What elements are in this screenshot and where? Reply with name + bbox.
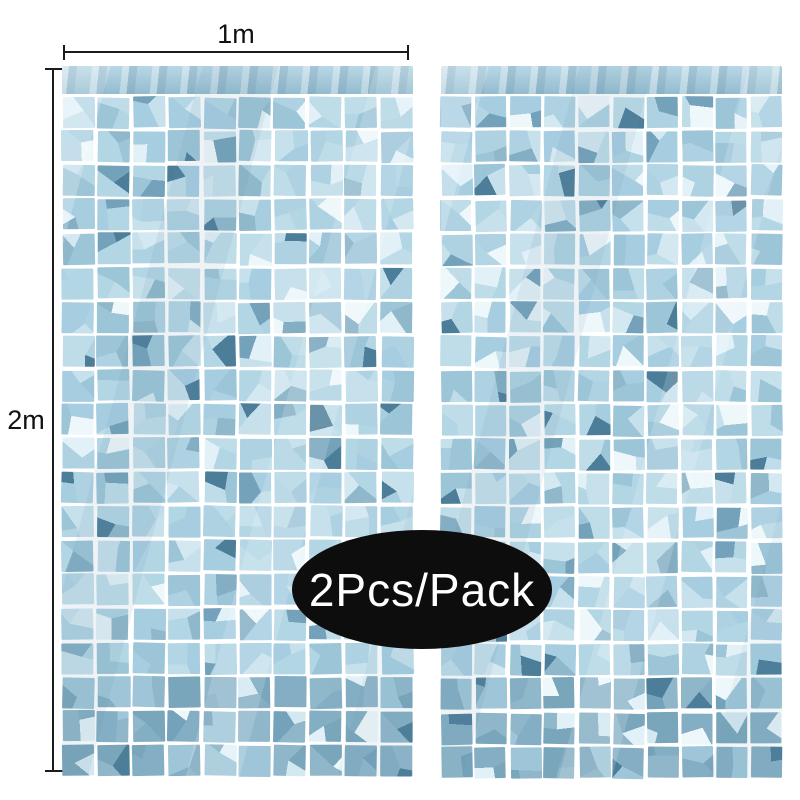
foil-square: [310, 130, 343, 162]
foil-square: [132, 744, 165, 776]
foil-square: [647, 371, 679, 402]
foil-square: [169, 301, 202, 332]
foil-square: [61, 608, 94, 640]
foil-square: [751, 507, 783, 539]
foil-square: [168, 745, 201, 777]
foil-square: [62, 573, 95, 605]
foil-square: [543, 712, 575, 744]
foil-square: [475, 302, 507, 333]
foil-square: [132, 267, 165, 299]
foil-square: [613, 644, 645, 675]
foil-square: [751, 302, 782, 333]
foil-square: [441, 473, 473, 504]
foil-square: [544, 438, 576, 470]
foil-square: [309, 710, 342, 742]
foil-square: [380, 403, 413, 435]
foil-square: [345, 302, 378, 333]
foil-square: [98, 266, 131, 298]
foil-square: [97, 97, 130, 129]
foil-square: [648, 644, 680, 676]
foil-square: [646, 473, 678, 505]
foil-square: [509, 269, 540, 300]
foil-square: [544, 472, 576, 504]
foil-square: [380, 745, 412, 776]
foil-square: [614, 439, 646, 471]
foil-square: [169, 541, 202, 573]
foil-square: [309, 405, 342, 437]
foil-square: [240, 609, 273, 640]
foil-square: [579, 440, 610, 471]
foil-square: [717, 611, 749, 642]
foil-square: [475, 96, 507, 128]
foil-square: [682, 166, 714, 198]
pack-count-label: 2Pcs/Pack: [309, 567, 535, 613]
foil-square: [750, 96, 782, 128]
foil-square: [380, 97, 413, 128]
foil-square: [62, 506, 95, 537]
foil-square: [750, 335, 782, 367]
foil-square: [275, 676, 308, 707]
foil-square: [612, 508, 644, 540]
foil-square: [614, 577, 646, 609]
foil-square: [380, 165, 413, 197]
foil-square: [345, 745, 378, 777]
foil-square: [442, 234, 474, 266]
foil-square: [274, 643, 306, 674]
foil-square: [750, 712, 782, 743]
foil-square: [578, 507, 609, 538]
foil-square: [510, 371, 542, 403]
foil-square: [132, 642, 165, 674]
foil-square: [612, 542, 644, 573]
foil-square: [61, 541, 94, 573]
foil-square: [509, 473, 541, 505]
foil-square: [381, 198, 414, 230]
foil-square: [97, 302, 130, 333]
foil-square: [311, 165, 344, 196]
foil-square: [681, 540, 713, 572]
foil-square: [750, 132, 782, 164]
foil-square: [168, 404, 201, 436]
foil-square: [681, 713, 712, 744]
foil-square: [98, 233, 130, 264]
foil-square: [682, 96, 714, 127]
foil-square: [750, 575, 782, 607]
foil-square: [61, 302, 94, 334]
foil-square: [545, 644, 577, 676]
foil-square: [63, 198, 96, 229]
foil-square: [440, 268, 472, 300]
foil-square: [63, 335, 96, 366]
foil-square: [61, 403, 94, 434]
foil-square: [346, 676, 379, 707]
foil-square: [579, 336, 611, 368]
foil-square: [614, 679, 646, 710]
foil-square: [239, 506, 272, 538]
foil-square: [441, 131, 473, 163]
foil-square: [274, 745, 307, 777]
foil-square: [510, 678, 542, 710]
foil-square: [380, 301, 413, 333]
foil-square: [509, 165, 541, 197]
foil-square: [543, 677, 575, 709]
foil-square: [309, 267, 342, 298]
foil-square: [440, 679, 472, 710]
right-curtain: [441, 66, 782, 778]
foil-square: [133, 710, 166, 742]
foil-square: [238, 165, 271, 197]
foil-square: [204, 677, 237, 708]
foil-square: [612, 200, 644, 232]
foil-square: [475, 130, 507, 162]
foil-square: [310, 745, 342, 776]
foil-square: [239, 575, 271, 606]
foil-square: [750, 439, 782, 470]
foil-square: [133, 472, 166, 503]
foil-square: [133, 437, 166, 468]
foil-square: [578, 576, 610, 608]
foil-square: [647, 164, 679, 196]
foil-square: [203, 607, 236, 639]
foil-square: [346, 130, 379, 161]
foil-square: [578, 301, 609, 332]
foil-square: [97, 166, 130, 198]
foil-square: [132, 574, 164, 605]
curtain-grid: [62, 94, 413, 776]
foil-square: [309, 96, 342, 128]
foil-square: [544, 96, 576, 128]
foil-square: [716, 438, 748, 470]
foil-square: [345, 233, 378, 265]
foil-square: [203, 711, 236, 743]
foil-square: [475, 506, 507, 538]
foil-square: [309, 198, 342, 230]
foil-square: [97, 438, 130, 469]
foil-square: [543, 302, 575, 334]
foil-square: [476, 473, 508, 505]
foil-square: [682, 130, 714, 162]
foil-square: [613, 335, 645, 366]
foil-square: [61, 130, 94, 161]
foil-square: [441, 645, 472, 676]
foil-square: [380, 132, 413, 164]
foil-square: [97, 642, 130, 673]
foil-square: [275, 234, 307, 265]
foil-square: [543, 268, 575, 300]
foil-square: [682, 200, 714, 232]
foil-square: [613, 97, 645, 129]
foil-square: [167, 471, 200, 503]
foil-square: [204, 472, 237, 504]
foil-square: [682, 643, 714, 675]
foil-square: [239, 540, 272, 572]
foil-square: [476, 678, 508, 709]
foil-square: [204, 369, 237, 401]
foil-square: [97, 711, 130, 743]
foil-square: [715, 541, 747, 572]
foil-square: [204, 574, 237, 606]
foil-square: [167, 166, 200, 197]
foil-square: [275, 370, 308, 402]
foil-square: [310, 505, 343, 537]
foil-square: [132, 199, 165, 231]
foil-square: [544, 165, 576, 197]
foil-square: [132, 232, 165, 263]
foil-square: [133, 541, 165, 572]
foil-square: [681, 233, 713, 265]
foil-square: [442, 404, 473, 435]
foil-square: [715, 370, 747, 402]
foil-square: [239, 473, 271, 504]
foil-square: [203, 404, 236, 436]
foil-square: [648, 336, 680, 368]
foil-square: [274, 439, 307, 470]
product-image: 1m 2m 2Pcs/Pack: [0, 0, 800, 800]
foil-square: [474, 747, 506, 779]
foil-square: [203, 165, 236, 197]
foil-square: [204, 268, 237, 299]
foil-square: [647, 97, 679, 128]
foil-square: [273, 711, 306, 743]
foil-square: [204, 643, 237, 675]
foil-square: [751, 199, 783, 231]
foil-square: [63, 97, 96, 128]
foil-square: [274, 404, 307, 435]
foil-square: [98, 541, 131, 573]
foil-square: [167, 437, 200, 469]
foil-square: [578, 542, 610, 574]
foil-square: [344, 336, 377, 368]
foil-square: [543, 542, 575, 574]
foil-square: [509, 130, 541, 162]
foil-square: [440, 200, 471, 231]
foil-square: [510, 96, 542, 127]
foil-square: [240, 439, 272, 470]
foil-square: [440, 335, 472, 367]
foil-square: [274, 199, 307, 231]
foil-square: [275, 472, 308, 503]
foil-square: [648, 199, 680, 231]
height-dimension-line: [52, 68, 54, 772]
foil-square: [98, 369, 131, 401]
foil-square: [169, 97, 202, 129]
foil-square: [98, 131, 131, 163]
foil-square: [682, 268, 713, 299]
foil-square: [167, 199, 200, 231]
foil-square: [62, 437, 94, 468]
foil-square: [238, 97, 271, 129]
foil-square: [543, 370, 575, 402]
foil-square: [441, 302, 473, 334]
foil-square: [62, 744, 95, 776]
foil-square: [648, 746, 680, 777]
foil-square: [441, 439, 473, 471]
foil-square: [380, 711, 412, 742]
foil-square: [682, 746, 714, 778]
foil-square: [509, 439, 540, 470]
foil-square: [474, 438, 506, 470]
height-dimension-label: 2m: [4, 407, 48, 434]
foil-square: [579, 609, 611, 640]
foil-square: [346, 370, 379, 402]
foil-square: [579, 234, 611, 265]
foil-square: [474, 164, 506, 196]
foil-square: [544, 131, 576, 163]
foil-square: [646, 268, 678, 300]
foil-square: [647, 712, 679, 744]
foil-square: [133, 96, 166, 128]
curtain-header-foil: [441, 66, 782, 94]
foil-square: [614, 234, 646, 265]
foil-square: [613, 610, 645, 641]
foil-square: [682, 507, 714, 539]
foil-square: [133, 301, 165, 332]
foil-square: [681, 336, 713, 368]
foil-square: [647, 233, 679, 265]
foil-square: [345, 403, 378, 435]
foil-square: [751, 404, 783, 436]
foil-square: [98, 676, 130, 707]
foil-square: [133, 403, 166, 435]
foil-square: [646, 576, 678, 608]
foil-square: [578, 132, 610, 164]
foil-square: [510, 713, 542, 745]
foil-square: [62, 371, 94, 402]
foil-square: [132, 335, 165, 367]
foil-square: [613, 268, 644, 299]
foil-square: [98, 200, 131, 231]
foil-square: [239, 268, 272, 300]
foil-square: [344, 199, 377, 231]
foil-square: [309, 233, 342, 265]
foil-square: [239, 130, 272, 162]
foil-square: [543, 609, 575, 641]
foil-square: [240, 643, 273, 674]
foil-square: [612, 132, 644, 164]
foil-square: [275, 268, 308, 300]
foil-square: [168, 676, 201, 708]
foil-square: [203, 302, 236, 333]
foil-square: [167, 710, 200, 742]
foil-square: [716, 267, 748, 299]
foil-square: [239, 200, 272, 231]
foil-square: [273, 98, 306, 129]
foil-square: [380, 267, 413, 298]
foil-square: [612, 747, 644, 779]
foil-square: [346, 711, 379, 742]
foil-square: [682, 370, 714, 402]
foil-square: [682, 611, 713, 642]
foil-square: [715, 200, 747, 232]
foil-square: [380, 677, 412, 708]
foil-square: [579, 678, 611, 710]
foil-square: [647, 542, 679, 574]
foil-square: [475, 234, 507, 266]
foil-square: [751, 233, 783, 265]
foil-square: [133, 166, 166, 198]
foil-square: [647, 438, 679, 470]
width-dimension-line: [63, 51, 409, 53]
foil-square: [544, 507, 576, 539]
foil-square: [168, 232, 201, 264]
foil-square: [509, 405, 541, 437]
foil-square: [96, 335, 129, 366]
foil-square: [168, 335, 201, 367]
foil-square: [510, 301, 542, 333]
foil-square: [716, 678, 748, 710]
foil-square: [715, 472, 747, 504]
foil-square: [750, 164, 782, 196]
foil-square: [543, 747, 575, 779]
foil-square: [579, 746, 611, 778]
foil-square: [750, 370, 782, 402]
foil-square: [344, 472, 377, 504]
foil-square: [441, 370, 473, 402]
foil-square: [716, 645, 748, 677]
foil-square: [345, 97, 378, 129]
foil-square: [717, 508, 749, 539]
foil-square: [441, 713, 473, 745]
foil-square: [613, 713, 645, 745]
foil-square: [238, 711, 271, 742]
foil-square: [168, 268, 201, 300]
foil-square: [750, 609, 782, 641]
curtain-grid: [441, 94, 782, 778]
foil-square: [345, 506, 378, 537]
foil-square: [167, 369, 200, 401]
foil-square: [309, 438, 341, 469]
foil-square: [716, 166, 748, 197]
foil-square: [510, 233, 541, 264]
foil-square: [579, 200, 611, 232]
foil-square: [202, 505, 235, 537]
foil-square: [544, 233, 576, 264]
foil-square: [96, 403, 129, 435]
foil-square: [346, 439, 379, 470]
foil-square: [238, 302, 271, 334]
foil-square: [475, 337, 507, 369]
foil-square: [578, 474, 610, 505]
foil-square: [132, 675, 165, 707]
foil-square: [577, 370, 609, 402]
foil-square: [204, 131, 237, 162]
foil-square: [440, 96, 472, 128]
foil-square: [509, 336, 541, 367]
foil-square: [441, 165, 473, 197]
foil-square: [578, 269, 610, 301]
foil-square: [474, 644, 506, 676]
foil-square: [647, 678, 679, 710]
foil-square: [476, 200, 508, 232]
foil-square: [441, 746, 473, 778]
foil-square: [511, 747, 543, 779]
foil-square: [681, 576, 713, 608]
foil-square: [750, 644, 782, 676]
foil-square: [133, 131, 166, 162]
foil-square: [510, 507, 541, 538]
foil-square: [204, 233, 237, 265]
foil-square: [97, 574, 130, 606]
foil-square: [613, 370, 644, 401]
foil-square: [61, 472, 94, 504]
foil-square: [204, 744, 237, 776]
foil-square: [381, 370, 414, 402]
foil-square: [97, 506, 130, 537]
foil-square: [381, 438, 414, 469]
left-curtain: [62, 66, 413, 776]
foil-square: [239, 370, 272, 401]
foil-square: [63, 234, 96, 266]
